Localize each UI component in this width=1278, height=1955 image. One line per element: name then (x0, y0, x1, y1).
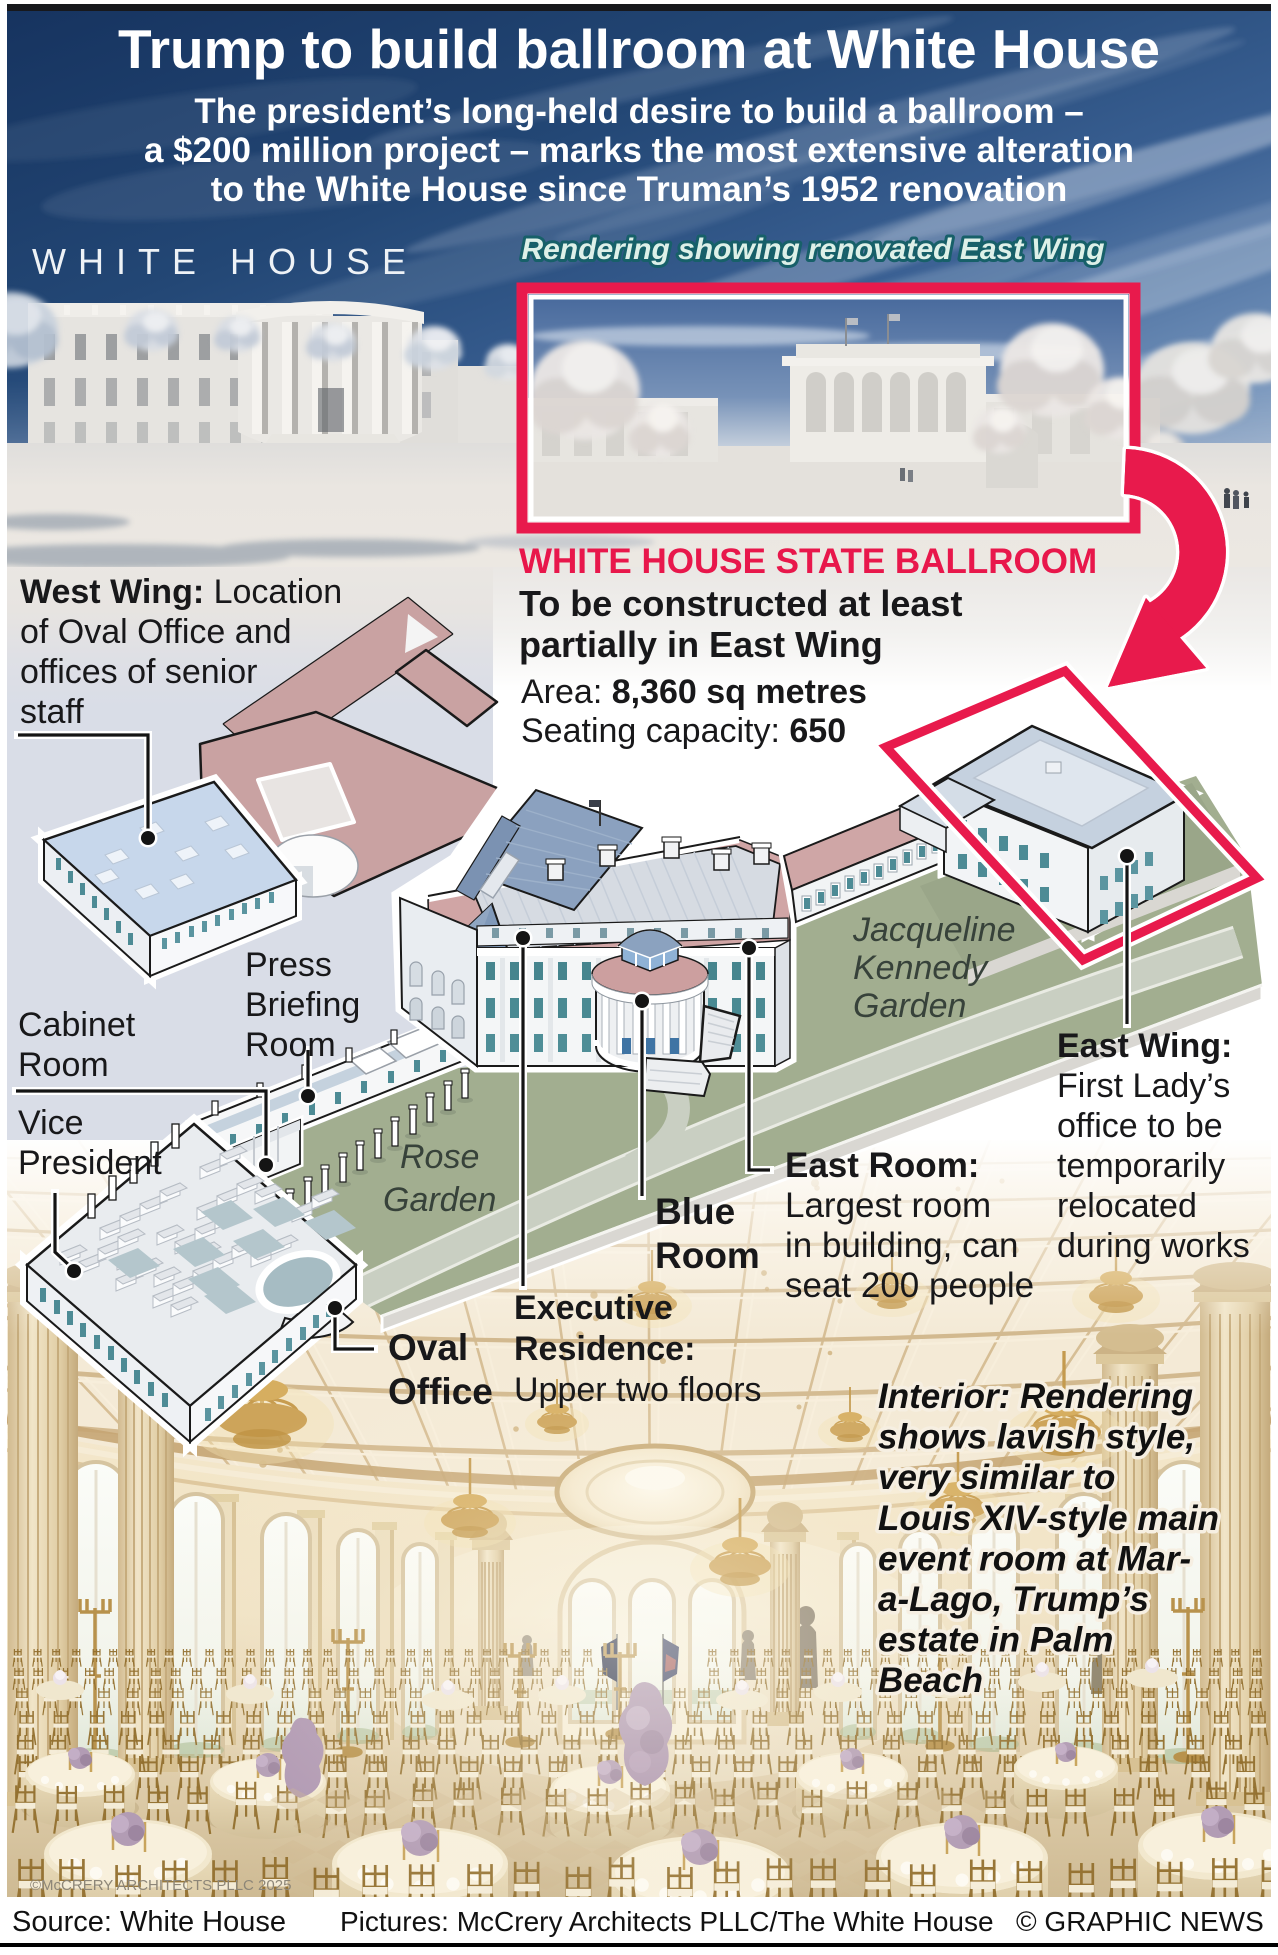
svg-text:Rose: Rose (400, 1138, 479, 1176)
svg-text:Beach: Beach (878, 1661, 983, 1700)
svg-text:Interior: Rendering: Interior: Rendering (878, 1377, 1193, 1416)
svg-text:Garden: Garden (853, 987, 966, 1025)
svg-text:Kennedy: Kennedy (853, 949, 989, 987)
svg-text:very similar to: very similar to (878, 1458, 1115, 1497)
svg-text:Garden: Garden (383, 1181, 496, 1219)
svg-text:shows lavish style,: shows lavish style, (878, 1418, 1195, 1457)
svg-text:©McCRERY ARCHITECTS PLLC 2025: ©McCRERY ARCHITECTS PLLC 2025 (30, 1877, 291, 1894)
svg-text:Louis XIV-style main: Louis XIV-style main (878, 1499, 1219, 1538)
svg-text:Rendering showing renovated Ea: Rendering showing renovated East Wing (521, 233, 1104, 266)
svg-text:event room at Mar-: event room at Mar- (878, 1539, 1191, 1578)
svg-text:estate in Palm: estate in Palm (878, 1621, 1113, 1660)
svg-text:a-Lago, Trump’s: a-Lago, Trump’s (878, 1580, 1149, 1619)
svg-text:Jacqueline: Jacqueline (852, 911, 1016, 949)
